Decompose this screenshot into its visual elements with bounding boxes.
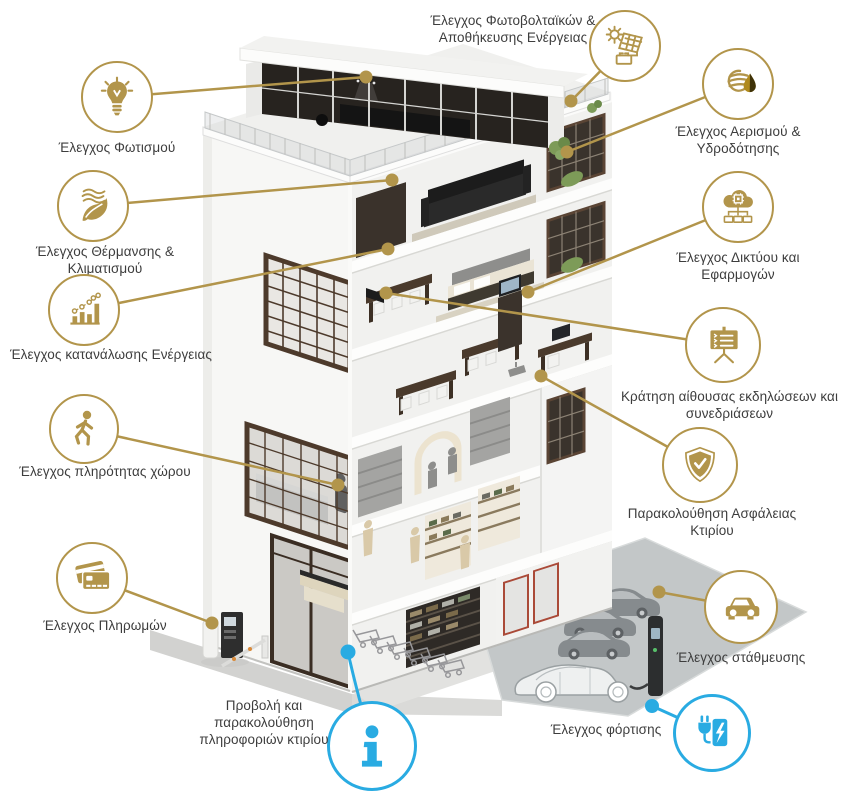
charging-callout: [673, 694, 751, 772]
parking-callout: [704, 570, 778, 644]
security-callout: [662, 427, 738, 503]
presentation-board-icon: [700, 322, 746, 368]
ventilation-label: Έλεγχος Αερισμού & Υδροδότησης: [646, 123, 830, 157]
solar-label: Έλεγχος Φωτοβολταϊκών & Αποθήκευσης Ενέρ…: [424, 12, 602, 46]
hvac-label: Έλεγχος Θέρμανσης & Κλιματισμού: [12, 243, 198, 277]
energy-label: Έλεγχος κατανάλωσης Ενέργειας: [5, 346, 217, 363]
payments-label: Έλεγχος Πληρωμών: [23, 617, 187, 634]
car-icon: [718, 584, 764, 630]
shield-check-icon: [677, 442, 723, 488]
ev-plug-icon: [688, 709, 736, 757]
lighting-callout: [81, 61, 153, 133]
occupancy-label: Έλεγχος πληρότητας χώρου: [8, 463, 202, 480]
network-callout: [702, 171, 774, 243]
storefront-doors: [272, 535, 350, 687]
walking-person-icon: [62, 407, 106, 451]
meeting-label: Κράτηση αίθουσας εκδηλώσεων και συνεδριά…: [607, 388, 852, 422]
bar-chart-icon: [61, 287, 107, 333]
info-label: Προβολή και παρακολούθηση πληροφοριών κτ…: [188, 697, 340, 748]
payments-callout: [56, 542, 128, 614]
lighting-label: Έλεγχος Φωτισμού: [37, 139, 197, 156]
security-label: Παρακολούθηση Ασφάλειας Κτιρίου: [610, 505, 814, 539]
meeting-callout: [685, 307, 761, 383]
ventilation-callout: [702, 48, 774, 120]
airflow-waterdrop-icon: [715, 61, 761, 107]
cloud-network-icon: [715, 184, 761, 230]
building-left-face: [203, 127, 350, 692]
parking-label: Έλεγχος στάθμευσης: [652, 649, 830, 666]
solar-panel-battery-icon: [602, 23, 648, 69]
info-icon: [346, 720, 398, 772]
charging-label: Έλεγχος φόρτισης: [543, 721, 669, 738]
credit-cards-icon: [69, 555, 115, 601]
network-label: Έλεγχος Δικτύου και Εφαρμογών: [646, 249, 830, 283]
smart-building-infographic: Έλεγχος Φωτισμού Έλεγχος Φωτοβολταϊκών &…: [0, 0, 852, 800]
leaf-breeze-icon: [70, 183, 116, 229]
lightbulb-icon: [94, 74, 140, 120]
hvac-callout: [57, 170, 129, 242]
occupancy-callout: [49, 394, 119, 464]
energy-callout: [48, 274, 120, 346]
info-callout: [327, 701, 417, 791]
